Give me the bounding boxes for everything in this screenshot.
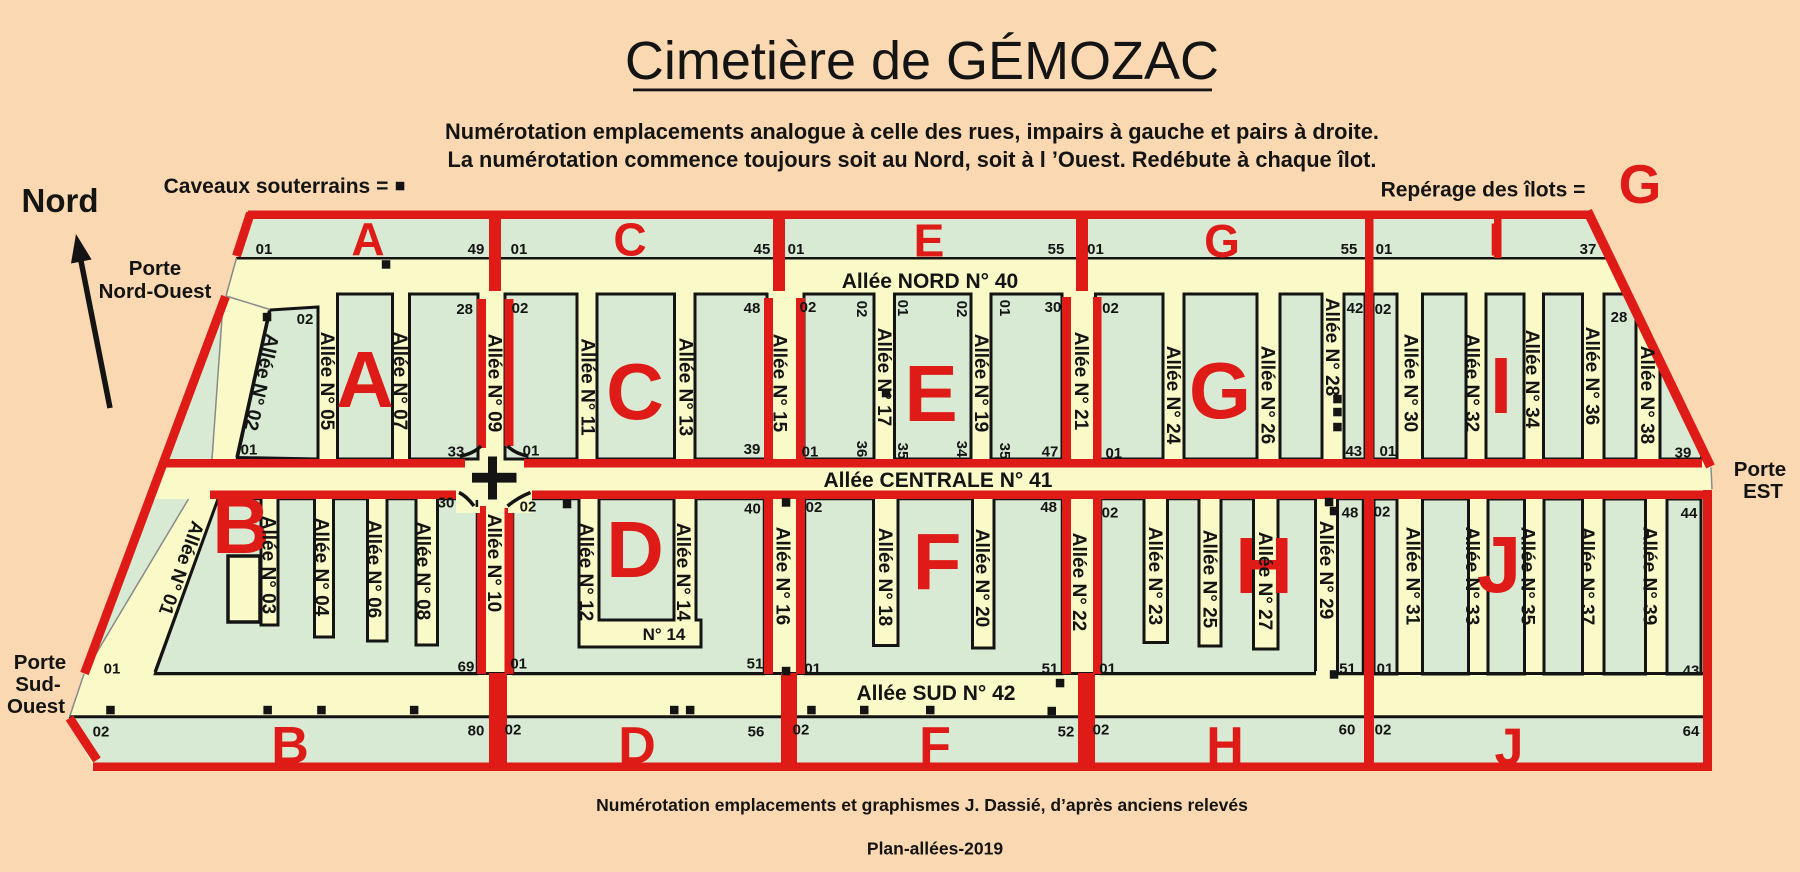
svg-text:E: E <box>914 215 945 267</box>
svg-text:Allée N° 11: Allée N° 11 <box>577 338 598 436</box>
svg-text:01: 01 <box>1099 661 1116 678</box>
svg-text:02: 02 <box>505 722 522 739</box>
svg-text:01: 01 <box>104 661 121 678</box>
svg-text:Allée N° 24: Allée N° 24 <box>1162 346 1183 445</box>
svg-text:Allée N° 05: Allée N° 05 <box>316 332 337 431</box>
svg-text:37: 37 <box>1580 241 1597 258</box>
svg-text:F: F <box>919 717 951 775</box>
svg-text:02: 02 <box>1375 301 1392 318</box>
svg-text:34: 34 <box>953 441 970 458</box>
svg-text:02: 02 <box>1102 505 1119 522</box>
svg-text:55: 55 <box>1048 241 1065 258</box>
svg-text:Numérotation emplacements anal: Numérotation emplacements analogue à cel… <box>445 119 1379 144</box>
svg-text:02: 02 <box>800 299 817 316</box>
svg-text:I: I <box>1490 341 1512 430</box>
svg-text:Allée N° 20: Allée N° 20 <box>971 529 992 627</box>
svg-text:Allée SUD N° 42: Allée SUD N° 42 <box>857 682 1016 705</box>
svg-text:80: 80 <box>468 723 485 740</box>
svg-text:02: 02 <box>1093 722 1110 739</box>
svg-text:48: 48 <box>744 300 761 317</box>
svg-text:02: 02 <box>1375 722 1392 739</box>
svg-text:55: 55 <box>1341 241 1358 258</box>
svg-text:Allée N° 30: Allée N° 30 <box>1400 334 1421 432</box>
svg-text:Allée N° 03: Allée N° 03 <box>258 516 279 614</box>
svg-text:64: 64 <box>1683 723 1700 740</box>
svg-text:Nord-Ouest: Nord-Ouest <box>99 280 212 303</box>
svg-text:G: G <box>1204 215 1240 267</box>
svg-text:60: 60 <box>1339 722 1356 739</box>
svg-text:01: 01 <box>1377 661 1394 678</box>
svg-text:C: C <box>613 214 646 266</box>
svg-text:02: 02 <box>806 499 823 516</box>
svg-text:Porte: Porte <box>129 257 181 280</box>
svg-text:Allée N° 16: Allée N° 16 <box>772 527 793 625</box>
svg-text:Allée NORD N° 40: Allée NORD N° 40 <box>842 270 1018 293</box>
svg-text:Allée N° 25: Allée N° 25 <box>1199 530 1220 629</box>
svg-text:01: 01 <box>1379 443 1396 460</box>
svg-text:44: 44 <box>1681 505 1698 522</box>
svg-text:Allée N° 37: Allée N° 37 <box>1576 527 1597 625</box>
svg-text:Allée N° 28: Allée N° 28 <box>1321 298 1342 396</box>
svg-text:28: 28 <box>456 301 473 318</box>
svg-text:47: 47 <box>1042 444 1059 461</box>
svg-text:40: 40 <box>744 501 761 518</box>
svg-text:E: E <box>904 349 957 438</box>
svg-text:Allée N° 27: Allée N° 27 <box>1254 532 1275 630</box>
svg-text:02: 02 <box>512 300 529 317</box>
svg-text:01: 01 <box>256 241 273 258</box>
svg-text:51: 51 <box>747 656 764 673</box>
svg-text:Numérotation emplacements et g: Numérotation emplacements et graphismes … <box>596 795 1248 815</box>
svg-text:Allée N° 19: Allée N° 19 <box>970 334 991 432</box>
svg-text:Allée N° 10: Allée N° 10 <box>483 514 504 612</box>
svg-text:D: D <box>618 717 656 775</box>
svg-text:30: 30 <box>1045 299 1062 316</box>
svg-text:51: 51 <box>1042 661 1059 678</box>
svg-text:Caveaux souterrains =: Caveaux souterrains = <box>164 175 389 198</box>
svg-text:N° 14: N° 14 <box>643 625 686 644</box>
svg-text:Plan-allées-2019: Plan-allées-2019 <box>867 839 1003 859</box>
svg-text:01: 01 <box>511 241 528 258</box>
svg-text:01: 01 <box>241 442 258 459</box>
svg-text:Porte: Porte <box>14 651 66 674</box>
svg-text:02: 02 <box>520 499 537 516</box>
svg-text:02: 02 <box>297 311 314 328</box>
svg-text:Allée N° 38: Allée N° 38 <box>1636 346 1657 444</box>
svg-text:G: G <box>1619 153 1662 215</box>
svg-text:Allée CENTRALE N° 41: Allée CENTRALE N° 41 <box>824 469 1053 492</box>
svg-text:Allée N° 22: Allée N° 22 <box>1068 533 1089 631</box>
svg-text:35: 35 <box>996 443 1013 460</box>
svg-text:35: 35 <box>894 443 911 460</box>
svg-text:01: 01 <box>510 656 527 673</box>
svg-text:01: 01 <box>996 300 1013 317</box>
svg-text:D: D <box>606 505 664 594</box>
svg-text:48: 48 <box>1342 505 1359 522</box>
svg-text:56: 56 <box>748 724 765 741</box>
svg-text:EST: EST <box>1743 480 1783 503</box>
svg-text:39: 39 <box>744 441 761 458</box>
svg-text:Ouest: Ouest <box>7 695 65 718</box>
svg-text:J: J <box>1477 520 1522 609</box>
svg-text:Allée N° 35: Allée N° 35 <box>1517 527 1538 626</box>
svg-text:Allée N° 32: Allée N° 32 <box>1461 334 1482 432</box>
svg-text:42: 42 <box>1347 300 1364 317</box>
svg-text:Allée N° 34: Allée N° 34 <box>1521 330 1542 429</box>
svg-text:01: 01 <box>802 444 819 461</box>
svg-text:Allée N° 08: Allée N° 08 <box>412 522 433 620</box>
svg-text:G: G <box>1189 346 1251 435</box>
svg-text:Allée N° 29: Allée N° 29 <box>1315 521 1336 619</box>
svg-text:La numérotation commence toujo: La numérotation commence toujours soit a… <box>448 147 1377 172</box>
svg-text:02: 02 <box>93 724 110 741</box>
svg-text:36: 36 <box>853 441 870 458</box>
svg-text:F: F <box>913 517 962 606</box>
svg-text:01: 01 <box>1087 241 1104 258</box>
svg-text:Sud-: Sud- <box>15 673 61 696</box>
svg-text:Nord: Nord <box>22 182 99 219</box>
svg-text:Allée N° 17: Allée N° 17 <box>873 328 894 426</box>
svg-text:Allée N° 36: Allée N° 36 <box>1581 327 1602 425</box>
svg-text:Allée N° 06: Allée N° 06 <box>363 520 384 618</box>
svg-text:02: 02 <box>1102 300 1119 317</box>
svg-text:02: 02 <box>1374 504 1391 521</box>
svg-text:33: 33 <box>448 444 465 461</box>
svg-text:01: 01 <box>788 241 805 258</box>
svg-text:Allée N° 26: Allée N° 26 <box>1257 346 1278 444</box>
svg-text:A: A <box>351 213 384 265</box>
svg-text:01: 01 <box>894 300 911 317</box>
svg-text:69: 69 <box>458 659 475 676</box>
svg-text:Allée N° 18: Allée N° 18 <box>874 528 895 626</box>
svg-text:C: C <box>606 347 664 436</box>
svg-text:01: 01 <box>1105 445 1122 462</box>
svg-text:J: J <box>1495 719 1524 777</box>
svg-text:49: 49 <box>468 241 485 258</box>
svg-text:02: 02 <box>953 301 970 318</box>
svg-text:Porte: Porte <box>1734 458 1786 481</box>
svg-text:Allée N° 15: Allée N° 15 <box>769 334 790 433</box>
svg-text:Allée N° 09: Allée N° 09 <box>484 334 505 432</box>
svg-text:28: 28 <box>1611 309 1628 326</box>
svg-text:51: 51 <box>1339 661 1356 678</box>
svg-text:Allée N° 21: Allée N° 21 <box>1070 332 1091 431</box>
svg-text:B: B <box>271 717 309 775</box>
svg-text:48: 48 <box>1040 499 1057 516</box>
svg-text:H: H <box>1206 717 1244 775</box>
svg-text:Allée N° 14: Allée N° 14 <box>672 523 693 622</box>
svg-text:Allée N° 31: Allée N° 31 <box>1402 527 1423 626</box>
svg-text:43: 43 <box>1683 663 1700 680</box>
svg-text:Allée N° 39: Allée N° 39 <box>1639 527 1660 625</box>
svg-text:Allée N° 23: Allée N° 23 <box>1144 527 1165 625</box>
svg-text:45: 45 <box>754 241 771 258</box>
svg-text:02: 02 <box>793 722 810 739</box>
svg-text:30: 30 <box>438 495 455 512</box>
svg-text:Allée N° 07: Allée N° 07 <box>389 332 410 430</box>
svg-text:Allée N° 04: Allée N° 04 <box>311 518 332 617</box>
svg-text:A: A <box>336 335 394 424</box>
svg-text:Cimetière de GÉMOZAC: Cimetière de GÉMOZAC <box>625 31 1219 91</box>
svg-text:01: 01 <box>1376 241 1393 258</box>
svg-text:Allée N° 33: Allée N° 33 <box>1461 527 1482 625</box>
svg-text:52: 52 <box>1058 724 1075 741</box>
svg-text:Allée N° 12: Allée N° 12 <box>575 523 596 621</box>
svg-text:Allée N° 13: Allée N° 13 <box>675 338 696 436</box>
svg-text:43: 43 <box>1345 443 1362 460</box>
svg-text:I: I <box>1489 214 1502 266</box>
svg-text:02: 02 <box>853 301 870 318</box>
svg-text:39: 39 <box>1675 445 1692 462</box>
svg-text:01: 01 <box>804 661 821 678</box>
svg-text:01: 01 <box>523 443 540 460</box>
svg-text:Repérage des îlots =: Repérage des îlots = <box>1381 179 1586 202</box>
